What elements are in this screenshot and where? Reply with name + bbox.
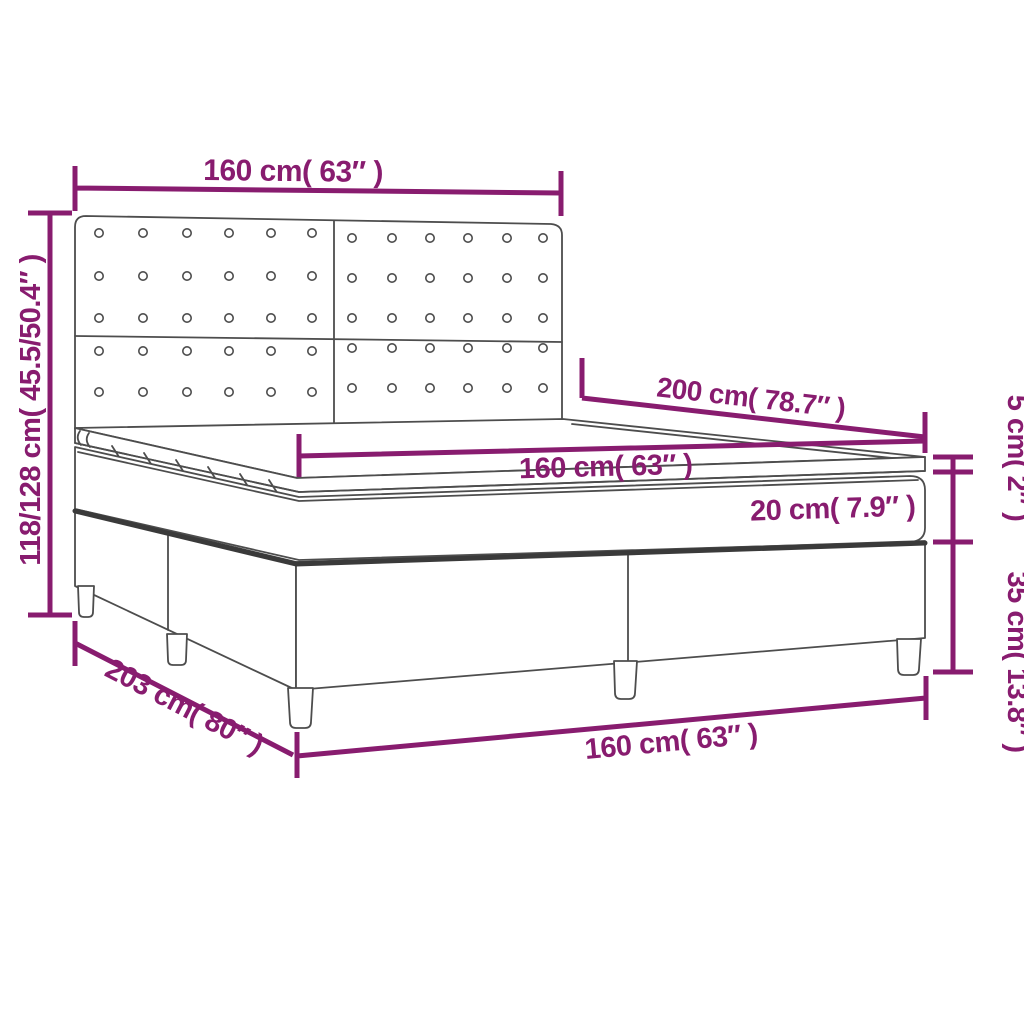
headboard-button bbox=[183, 272, 191, 280]
headboard-button bbox=[95, 272, 103, 280]
headboard-button bbox=[139, 347, 147, 355]
headboard-button bbox=[95, 314, 103, 322]
label-topper-height: 5 cm( 2″ ) bbox=[1001, 395, 1024, 522]
headboard-button bbox=[348, 274, 356, 282]
headboard-button bbox=[464, 274, 472, 282]
headboard-button bbox=[503, 274, 511, 282]
bed-illustration bbox=[75, 216, 925, 728]
headboard-button bbox=[503, 314, 511, 322]
label-base-height: 35 cm( 13.8″ ) bbox=[1001, 572, 1024, 753]
headboard-button bbox=[139, 272, 147, 280]
headboard-button bbox=[225, 229, 233, 237]
headboard-button bbox=[267, 229, 275, 237]
headboard-button bbox=[539, 274, 547, 282]
dim-right-heights bbox=[933, 457, 973, 672]
bed-dimension-diagram: 160 cm( 63″ ) 118/128 cm( 45.5/50.4″ ) 2… bbox=[0, 0, 1024, 1024]
headboard-panel bbox=[75, 216, 562, 429]
headboard-button bbox=[388, 344, 396, 352]
headboard-button bbox=[183, 388, 191, 396]
headboard-button bbox=[503, 384, 511, 392]
headboard-button bbox=[225, 272, 233, 280]
headboard-button bbox=[464, 234, 472, 242]
headboard-button bbox=[308, 347, 316, 355]
headboard-button bbox=[308, 388, 316, 396]
headboard-button bbox=[503, 344, 511, 352]
headboard-button bbox=[426, 234, 434, 242]
label-headboard-width: 160 cm( 63″ ) bbox=[203, 154, 383, 189]
headboard-button bbox=[388, 274, 396, 282]
headboard-button bbox=[139, 229, 147, 237]
headboard-button bbox=[348, 344, 356, 352]
label-base-length-203: 203 cm( 80″ ) bbox=[100, 653, 269, 761]
headboard-button bbox=[183, 314, 191, 322]
diagram-canvas: 160 cm( 63″ ) 118/128 cm( 45.5/50.4″ ) 2… bbox=[0, 0, 1024, 1024]
bed-leg bbox=[167, 634, 187, 665]
headboard-button bbox=[539, 384, 547, 392]
headboard-button bbox=[464, 344, 472, 352]
bed-leg bbox=[288, 688, 313, 728]
headboard-button bbox=[267, 314, 275, 322]
headboard-button bbox=[267, 347, 275, 355]
label-mattress-height: 20 cm( 7.9″ ) bbox=[750, 490, 916, 527]
headboard-button bbox=[464, 314, 472, 322]
headboard-button bbox=[95, 229, 103, 237]
headboard-button bbox=[348, 384, 356, 392]
headboard-button bbox=[183, 229, 191, 237]
headboard-button bbox=[348, 234, 356, 242]
headboard-button bbox=[388, 314, 396, 322]
headboard-button bbox=[388, 384, 396, 392]
headboard-button bbox=[95, 388, 103, 396]
headboard-button bbox=[464, 384, 472, 392]
headboard-button bbox=[348, 314, 356, 322]
headboard-button bbox=[139, 388, 147, 396]
headboard-button bbox=[388, 234, 396, 242]
headboard-button bbox=[225, 347, 233, 355]
headboard-button bbox=[426, 344, 434, 352]
headboard-button bbox=[539, 234, 547, 242]
headboard-button bbox=[139, 314, 147, 322]
label-mattress-width: 160 cm( 63″ ) bbox=[519, 449, 693, 486]
headboard-button bbox=[308, 229, 316, 237]
headboard-button bbox=[267, 388, 275, 396]
headboard-button bbox=[426, 384, 434, 392]
bed-leg bbox=[78, 586, 94, 617]
headboard-button bbox=[426, 314, 434, 322]
headboard-button bbox=[539, 344, 547, 352]
headboard-button bbox=[308, 314, 316, 322]
bed-leg bbox=[614, 661, 637, 699]
headboard-button bbox=[503, 234, 511, 242]
bed-leg bbox=[897, 639, 921, 675]
headboard-button bbox=[95, 347, 103, 355]
headboard-button bbox=[267, 272, 275, 280]
headboard-button bbox=[183, 347, 191, 355]
headboard-button bbox=[225, 314, 233, 322]
headboard-button bbox=[539, 314, 547, 322]
label-overall-height: 118/128 cm( 45.5/50.4″ ) bbox=[15, 254, 47, 565]
headboard-button bbox=[225, 388, 233, 396]
headboard-button bbox=[426, 274, 434, 282]
headboard-button bbox=[308, 272, 316, 280]
